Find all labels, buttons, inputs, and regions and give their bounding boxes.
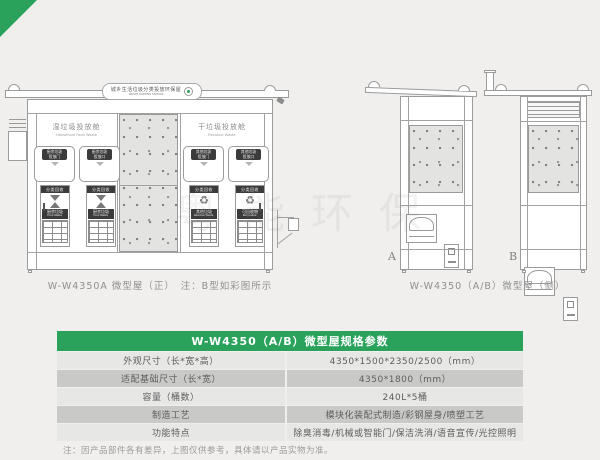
- side-b-frame: [520, 121, 587, 122]
- spec-label: 制造工艺: [57, 406, 285, 423]
- brand-logo-icon: [184, 87, 193, 96]
- side-view-caption: W-W4350（A/B）微型屋（侧）: [380, 278, 595, 292]
- spec-value: 240L*5桶: [287, 388, 523, 405]
- bin-cabinet: 分类回收 厨余垃圾Food Waste: [40, 185, 70, 247]
- side-a-frame: [400, 249, 473, 250]
- foot: [522, 270, 526, 273]
- spec-table-title: W-W4350（A/B）微型屋规格参数: [57, 331, 523, 351]
- vent-grille: [88, 220, 114, 243]
- side-a-hopper: [406, 214, 437, 243]
- spec-label: 适配基础尺寸（长*宽）: [57, 370, 285, 387]
- foot: [402, 270, 406, 273]
- left-section-title: 湿垃圾投放舱 Household Food Waste: [37, 123, 116, 137]
- spec-label: 容量（桶数）: [57, 388, 285, 405]
- spec-row: 适配基础尺寸（长*宽） 4350*1800（mm）: [57, 370, 523, 387]
- center-glass-panel: [119, 114, 178, 252]
- chevron-down-icon: [245, 162, 253, 166]
- wall-label: [9, 119, 26, 129]
- chevron-down-icon: [96, 162, 104, 166]
- spec-table: W-W4350（A/B）微型屋规格参数 外观尺寸（长*宽*高） 4350*150…: [57, 331, 523, 441]
- foot: [28, 270, 32, 273]
- side-a-frame: [464, 96, 465, 270]
- side-b-louver-vent: [527, 101, 580, 118]
- sign-subtitle: WASTE SORTING STATION: [114, 93, 177, 96]
- dome-light-icon: [458, 85, 470, 91]
- side-a-glass: [409, 125, 463, 193]
- food-waste-icon: [96, 195, 106, 208]
- chimney: [486, 72, 494, 92]
- food-waste-icon: [50, 195, 60, 208]
- bin-cabinet: 分类回收 ♻ 其他垃圾Residual Waste: [189, 185, 219, 247]
- wall-hopper: [288, 218, 299, 231]
- vent-grille: [237, 220, 263, 243]
- spec-value: 4350*1500*2350/2500（mm）: [287, 352, 523, 369]
- footnote: 注：因产品部件各有差异，上图仅供参考，具体请以产品实物为准。: [63, 444, 333, 456]
- dome-light-icon: [8, 84, 20, 90]
- spec-label: 功能特点: [57, 424, 285, 441]
- spec-row: 容量（桶数） 240L*5桶: [57, 388, 523, 405]
- bin-cabinet: 分类回收 ♻ 可回收物Recyclable: [235, 185, 265, 247]
- chevron-down-icon: [200, 162, 208, 166]
- side-b-control-panel: [563, 297, 578, 321]
- bin-label: 其他垃圾Residual Waste: [191, 209, 216, 219]
- foot: [266, 270, 270, 273]
- dome-light-icon: [577, 84, 589, 90]
- door-handle: [259, 203, 261, 211]
- spec-sheet-page: { "colors": {"accent_green": "#2aa25c", …: [0, 0, 600, 460]
- glass-divider-line: [119, 185, 178, 186]
- side-b-glass: [528, 125, 579, 193]
- door-handle: [43, 203, 45, 211]
- vent-grille: [191, 220, 217, 243]
- side-b-frame: [580, 96, 581, 270]
- foot: [581, 270, 585, 273]
- front-pillar: [117, 113, 118, 252]
- right-section-title: 干垃圾投放舱 Residual Waste: [182, 123, 262, 137]
- side-b-frame: [520, 205, 587, 206]
- door-badge: 其他垃圾投放口: [236, 149, 261, 160]
- side-a-frame: [400, 120, 473, 121]
- corner-accent: [0, 0, 37, 37]
- bin-label: 厨余垃圾Food Waste: [42, 209, 67, 219]
- spec-value: 4350*1800（mm）: [287, 370, 523, 387]
- foot: [467, 270, 471, 273]
- dome-light-icon: [264, 85, 276, 91]
- spec-row: 功能特点 除臭消毒/机械或智能门/保洁洗消/语音宣传/光控照明: [57, 424, 523, 441]
- door-badge: 厨余垃圾投放口: [87, 149, 112, 160]
- spec-label: 外观尺寸（长*宽*高）: [57, 352, 285, 369]
- side-a-control-panel: [444, 244, 459, 268]
- door-badge: 厨余垃圾投放门: [42, 149, 67, 160]
- chevron-down-icon: [51, 162, 59, 166]
- vent-grille: [42, 220, 68, 243]
- deposit-door: 厨余垃圾投放口: [79, 146, 120, 182]
- wall-bracket-strut: [278, 233, 293, 245]
- wall-control-box: [8, 131, 27, 161]
- side-b-label: B: [509, 250, 517, 263]
- deposit-door: 厨余垃圾投放门: [34, 146, 75, 182]
- side-b-frame: [520, 249, 587, 250]
- dome-light-icon: [495, 84, 507, 90]
- spec-row: 外观尺寸（长*宽*高） 4350*1500*2350/2500（mm）: [57, 352, 523, 369]
- recycle-icon: ♻: [190, 193, 218, 208]
- door-badge: 其他垃圾投放门: [191, 149, 216, 160]
- dome-light-icon: [368, 81, 380, 87]
- deposit-door: 其他垃圾投放门: [183, 146, 224, 182]
- spec-value: 除臭消毒/机械或智能门/保洁洗消/语音宣传/光控照明: [287, 424, 523, 441]
- front-view-caption: W-W4350A 微型屋（正） 注：B型如彩图所示: [10, 278, 310, 292]
- front-sill-line: [27, 252, 273, 253]
- spec-row: 制造工艺 模块化装配式制造/彩钢屋身/喷塑工艺: [57, 406, 523, 423]
- bin-label: 厨余垃圾Food Waste: [88, 209, 113, 219]
- front-pillar: [180, 113, 181, 252]
- side-a-label: A: [388, 250, 396, 263]
- deposit-door: 其他垃圾投放口: [228, 146, 269, 182]
- side-view-a: A: [0, 0, 600, 53]
- side-a-frame: [400, 205, 473, 206]
- spec-value: 模块化装配式制造/彩钢屋身/喷塑工艺: [287, 406, 523, 423]
- station-sign: 城乡生活垃圾分类投放环保屋 WASTE SORTING STATION: [102, 83, 202, 100]
- bin-cabinet: 分类回收 厨余垃圾Food Waste: [86, 185, 116, 247]
